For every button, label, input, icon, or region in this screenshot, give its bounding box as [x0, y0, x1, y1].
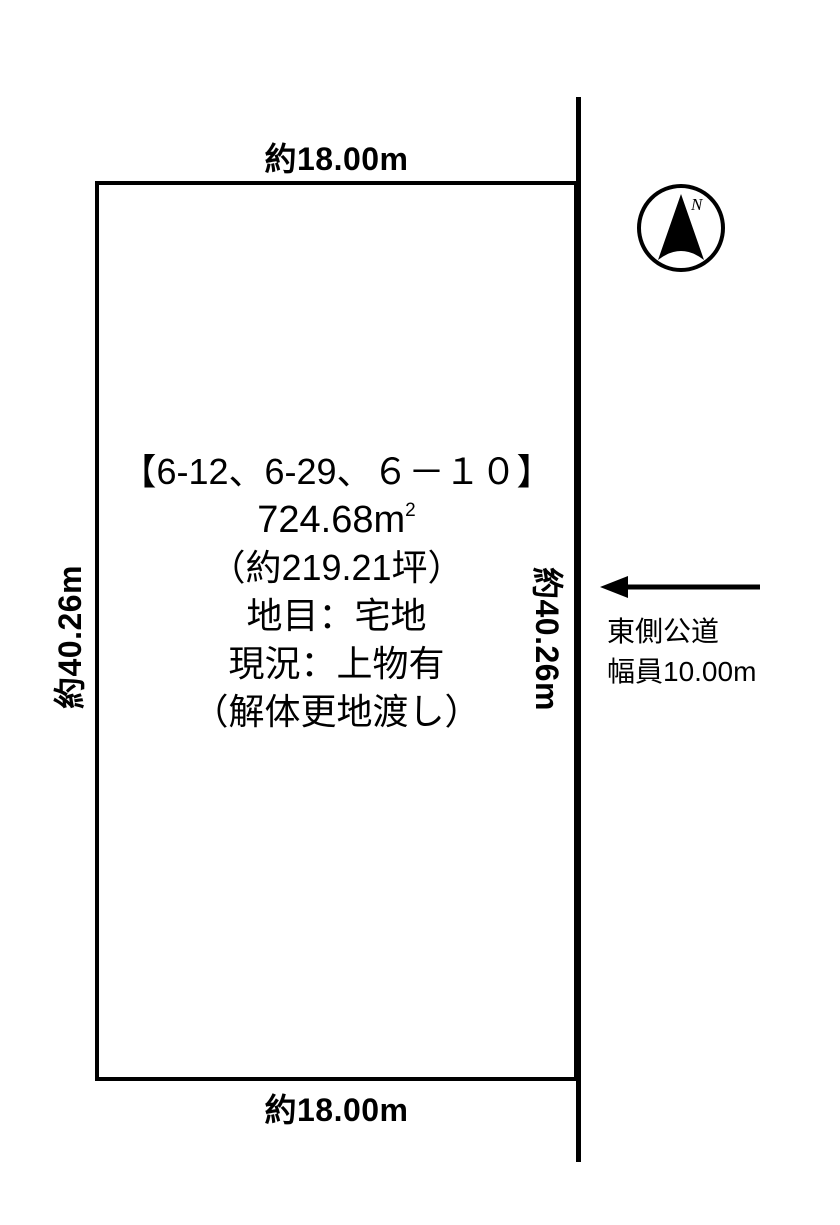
current-status: 現況：上物有	[95, 640, 578, 688]
compass-north-label: N	[690, 195, 704, 214]
handover-condition: （解体更地渡し）	[95, 688, 578, 736]
dimension-bottom-width: 約18.00m	[95, 1085, 578, 1131]
parcel-numbers: 【6-12、6-29、６－１０】	[95, 448, 578, 496]
area-sqm-value: 724.68	[257, 499, 373, 541]
dimension-left-depth: 約40.26m	[45, 565, 91, 709]
plot-info-block: 【6-12、6-29、６－１０】 724.68m2 （約219.21坪） 地目：…	[95, 448, 578, 736]
dimension-top-width: 約18.00m	[95, 134, 578, 180]
area-tsubo: （約219.21坪）	[95, 544, 578, 592]
road-direction-arrow-icon	[598, 572, 766, 602]
road-width-label: 幅員10.00m	[607, 652, 756, 692]
area-sqm-unit: m	[374, 499, 406, 541]
land-plot-diagram: 約18.00m 約18.00m 約40.26m 約40.26m 【6-12、6-…	[0, 0, 840, 1225]
road-info-block: 東側公道 幅員10.00m	[607, 612, 756, 692]
area-sqm: 724.68m2	[95, 496, 578, 544]
land-category: 地目：宅地	[95, 592, 578, 640]
road-name: 東側公道	[607, 612, 756, 652]
area-sqm-exponent: 2	[405, 500, 416, 521]
north-compass-icon: N	[635, 182, 727, 274]
